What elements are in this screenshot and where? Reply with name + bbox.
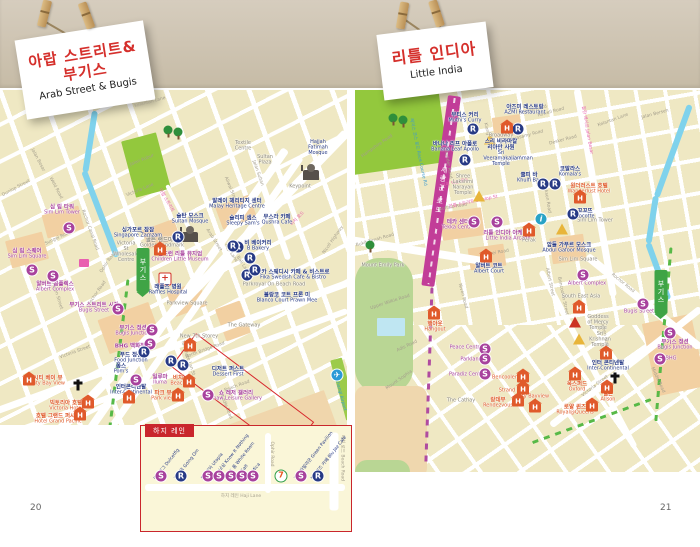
mosque-icon xyxy=(303,170,319,180)
shopping-marker-icon: S xyxy=(578,270,589,281)
peace-centre-label: Peace Centre xyxy=(450,345,483,350)
malay-heritage-centre-label: 말레이 헤리티지 센터Malay Heritage Centre xyxy=(209,198,265,209)
road xyxy=(145,484,345,491)
iluma-label: 일루마Iluma xyxy=(152,374,167,385)
hotel-marker-icon: H xyxy=(154,247,166,256)
park xyxy=(355,460,410,472)
shopping-marker-icon: S xyxy=(469,217,480,228)
blanco-court-prawn-mee-label: 블랑코 코트 프론 미Blanco Court Prawn Mee xyxy=(257,292,318,303)
restaurant-marker-icon: R xyxy=(250,265,261,276)
raffles-hospital-label: 래플즈 병원Raffles Hospital xyxy=(149,284,188,295)
information-marker-icon: i xyxy=(536,214,547,225)
hotel-marker-icon: H xyxy=(601,385,613,394)
shopping-marker-icon: S xyxy=(480,369,491,380)
little-india-map: 세랑군 로드부기스iRRRRRRHHHHHHHHHHHHHHSSSSSSSSS무… xyxy=(355,90,700,472)
banana-leaf-apollo-label: 바나나 리프 아폴로Banana Leaf Apollo xyxy=(431,141,479,152)
hotel-marker-icon: H xyxy=(501,125,513,134)
card-korean-title: 리틀 인디아 xyxy=(391,39,478,68)
restaurant-marker-icon: R xyxy=(568,209,579,220)
hotel-marker-icon: H xyxy=(184,343,196,352)
page-number-right: 21 xyxy=(660,503,671,513)
hajjah-fatimah-mosque-label: Hajjah Fatimah Mosque xyxy=(304,140,332,156)
ophir-road-street-label: Ophir Road xyxy=(270,441,275,466)
inset-title-tab: 하지 레인 xyxy=(145,424,194,437)
goddess-of-mercy-temple-label: Goddess of Mercy Temple xyxy=(585,315,610,331)
hotel-marker-icon: H xyxy=(523,228,535,237)
sim-lim-square-label: Sim Lim Square xyxy=(559,257,598,262)
restaurant-marker-icon: R xyxy=(139,347,150,358)
sleepy-sam-s-label: 슬리피 샘스Sleepy Sam's xyxy=(226,215,259,226)
shopping-marker-icon: S xyxy=(156,471,167,482)
mrt-station-name: 부기스 xyxy=(138,258,148,282)
shopping-marker-icon: S xyxy=(113,304,124,315)
hotel-marker-icon: H xyxy=(512,398,524,407)
tree-icon xyxy=(399,116,408,125)
shopping-marker-icon: S xyxy=(226,471,237,482)
bencoolen-label: Bencoolen xyxy=(492,375,518,380)
restaurant-marker-icon: R xyxy=(245,253,256,264)
broadway-label: Broadway xyxy=(489,133,514,138)
albert-complex-label: Albert Complex xyxy=(568,281,606,286)
mrt-station-banner: 부기스 xyxy=(137,248,150,292)
sultan-plaza-label: Sultan Plaza xyxy=(257,155,274,166)
hotel-marker-icon: H xyxy=(574,195,586,204)
restaurant-marker-icon: R xyxy=(176,471,187,482)
shopping-marker-icon: S xyxy=(665,328,676,339)
tree-icon xyxy=(164,126,173,135)
sri-veeramakaliamman-temple-label: 스리 비라마칼리아만 사원Sri Veeramakaliamman Temple xyxy=(483,139,518,167)
hotel-marker-icon: H xyxy=(74,412,86,421)
sim-lim-tower-label: Sim Lim Tower xyxy=(577,218,613,223)
restaurant-marker-icon: R xyxy=(460,155,471,166)
hotel-marker-icon: H xyxy=(123,395,135,404)
tree-icon xyxy=(174,128,183,137)
the-cathay-label: The Cathay xyxy=(447,398,475,403)
tree-icon xyxy=(366,241,375,250)
sultan-mosque-label: 술탄 모스크Sultan Mosque xyxy=(172,213,209,224)
parkview-square-label: Parkview Square xyxy=(166,301,207,306)
restaurant-marker-icon: R xyxy=(513,124,524,135)
pond xyxy=(377,318,405,336)
shree-lakshmi-narayan-temple-label: Shree Lakshmi Narayan Temple xyxy=(452,174,474,196)
oxford-label: 옥스퍼드Oxford xyxy=(567,381,587,392)
shopping-marker-icon: S xyxy=(27,265,38,276)
hotel-marker-icon: H xyxy=(529,404,541,413)
dessert-first-label: 디저트 퍼스트Dessert First xyxy=(212,366,244,377)
victoria-st-wholesale-centre-label: Victoria St Wholesale Centre xyxy=(113,241,138,263)
sim-lim-square-label: 심 림 스퀘어Sim Lim Square xyxy=(8,248,47,259)
hotel-marker-icon: H xyxy=(23,377,35,386)
shaw-leisure-gallery-label: 쇼 레저 갤러리Shaw Leisure Gallery xyxy=(210,390,262,401)
shopping-marker-icon: S xyxy=(64,223,75,234)
park xyxy=(355,90,448,176)
card-english-title: Little India xyxy=(409,63,463,80)
restaurant-marker-icon: R xyxy=(228,241,239,252)
mrt-station-name: 부기스 xyxy=(656,280,666,304)
하지-레인-haji-lane-street-label: 하지 레인 Haji Lane xyxy=(221,492,261,499)
parklane-label: Parklane xyxy=(460,357,481,362)
shopping-marker-icon: S xyxy=(147,325,158,336)
abdul-gafoor-mosque-label: 압둘 가푸르 모스크Abdul Gafoor Mosque xyxy=(542,242,595,253)
azmi-restaurant-label: 아즈미 레스토랑AZMI Restaurant xyxy=(504,104,545,115)
fika-swedish-cafe-bistro-label: 피카 스웨디시 카페 & 비스트로Fika Swedish Cafe & Bis… xyxy=(256,269,329,280)
hotel-marker-icon: H xyxy=(586,403,598,412)
restaurant-marker-icon: R xyxy=(173,232,184,243)
perak-label: Perak xyxy=(522,238,536,243)
hotel-marker-icon: H xyxy=(600,351,612,360)
temple-icon xyxy=(556,224,568,235)
shopping-marker-icon: S xyxy=(203,390,214,401)
bugis-street-label: Bugis Street xyxy=(624,309,654,314)
mrt-station-banner: 부기스 xyxy=(655,270,668,314)
mosque-icon xyxy=(182,232,198,242)
bhg-label: BHG xyxy=(666,356,677,361)
rendezvous-label: 랑데부Rendezvous xyxy=(483,397,513,408)
guidebook-page: 아랍 스트리트& 부기스 Arab Street & Bugis 리틀 인디아 … xyxy=(0,0,700,547)
qushra-cafe-label: 무스라 카페Qushra Cafe xyxy=(262,214,293,225)
shopping-marker-icon: S xyxy=(248,471,259,482)
hotel-marker-icon: H xyxy=(172,393,184,402)
restaurant-marker-icon: R xyxy=(550,179,561,190)
pink-icon xyxy=(79,259,89,267)
shopping-marker-icon: S xyxy=(638,299,649,310)
albert-complex-label: 알버트 콤플렉스Albert Complex xyxy=(36,281,74,292)
shopping-marker-icon: S xyxy=(655,354,666,365)
tree-icon xyxy=(389,114,398,123)
restaurant-marker-icon: R xyxy=(538,179,549,190)
restaurant-marker-icon: R xyxy=(166,356,177,367)
b-bakery-label: 비 베이커리B Bakery xyxy=(244,240,271,251)
shopping-marker-icon: S xyxy=(214,471,225,482)
temple_red-icon xyxy=(569,317,581,328)
right-map-title-card: 리틀 인디아 Little India xyxy=(376,22,493,101)
bugis-junction-label: 부기스 정션Bugis Junction xyxy=(657,339,692,350)
hotel-marker-icon: H xyxy=(573,305,585,314)
mount-emily-park-label: Mount Emily Park xyxy=(362,263,405,268)
shopping-marker-icon: S xyxy=(237,471,248,482)
haji-lane-inset-map: 하지 레인하지 레인 Haji LaneOphir Road비치 로드 Beac… xyxy=(140,425,352,532)
textile-centre-label: Textile Centre xyxy=(235,141,252,152)
bugis-junction-label: 부기스 정션Bugis Junction xyxy=(115,325,150,336)
shopping-marker-icon: S xyxy=(296,471,307,482)
hotel-marker-icon: H xyxy=(480,254,492,263)
muthi-s-curry-label: 무티스 커리Muthi's Curry xyxy=(449,112,482,123)
shopping-marker-icon: S xyxy=(203,471,214,482)
keypoint-label: Keypoint xyxy=(289,184,311,189)
hotel-marker-icon: H xyxy=(183,379,195,388)
hangout-label: 행아웃Hangout xyxy=(424,321,445,332)
city-bay-view-label: 시티 베이 뷰City Bay View xyxy=(31,375,65,386)
hotel-marker-icon: H xyxy=(428,311,440,320)
shopping-marker-icon: S xyxy=(492,217,503,228)
shopping-marker-icon: S xyxy=(480,354,491,365)
komala-s-label: 코말라스Komala's xyxy=(559,166,581,177)
seven-eleven-marker-icon: 7 xyxy=(275,470,288,483)
bugis-street-label: 부기스 스트리트 시장Bugis Street xyxy=(69,302,118,313)
inter-continental-label: 인터 콘티넨탈Inter-Continental xyxy=(587,360,629,371)
the-gateway-label: The Gateway xyxy=(228,323,261,328)
sim-lim-tower-label: 심 림 타워Sim Lim Tower xyxy=(44,204,80,215)
restaurant-marker-icon: R xyxy=(313,471,324,482)
singapore-zamzam-label: 싱가포르 잠잠Singapore Zamzam xyxy=(114,227,162,238)
arab-street-bugis-map: 부기스+✈SSSSSSSSRRRRRRRRRHHHHHHHH심 림 타워Sim … xyxy=(0,90,347,425)
cross-icon xyxy=(77,380,80,391)
shopping-marker-icon: S xyxy=(131,375,142,386)
temple-icon xyxy=(573,334,585,345)
temple-icon xyxy=(473,191,485,202)
shopping-marker-icon: S xyxy=(48,271,59,282)
airplane-marker-icon: ✈ xyxy=(332,370,343,381)
parkroyal-on-beach-road-label: Parkroyal On Beach Road xyxy=(243,282,306,287)
card-korean-title-line1: 리틀 인디아 xyxy=(391,39,478,68)
restaurant-marker-icon: R xyxy=(468,124,479,135)
pom-s-label: 폼스Pom's xyxy=(114,363,129,374)
restaurant-marker-icon: R xyxy=(178,360,189,371)
hotel-marker-icon: H xyxy=(569,372,581,381)
albert-court-label: 알버트 코트Albert Court xyxy=(474,263,504,274)
page-number-left: 20 xyxy=(30,503,41,513)
